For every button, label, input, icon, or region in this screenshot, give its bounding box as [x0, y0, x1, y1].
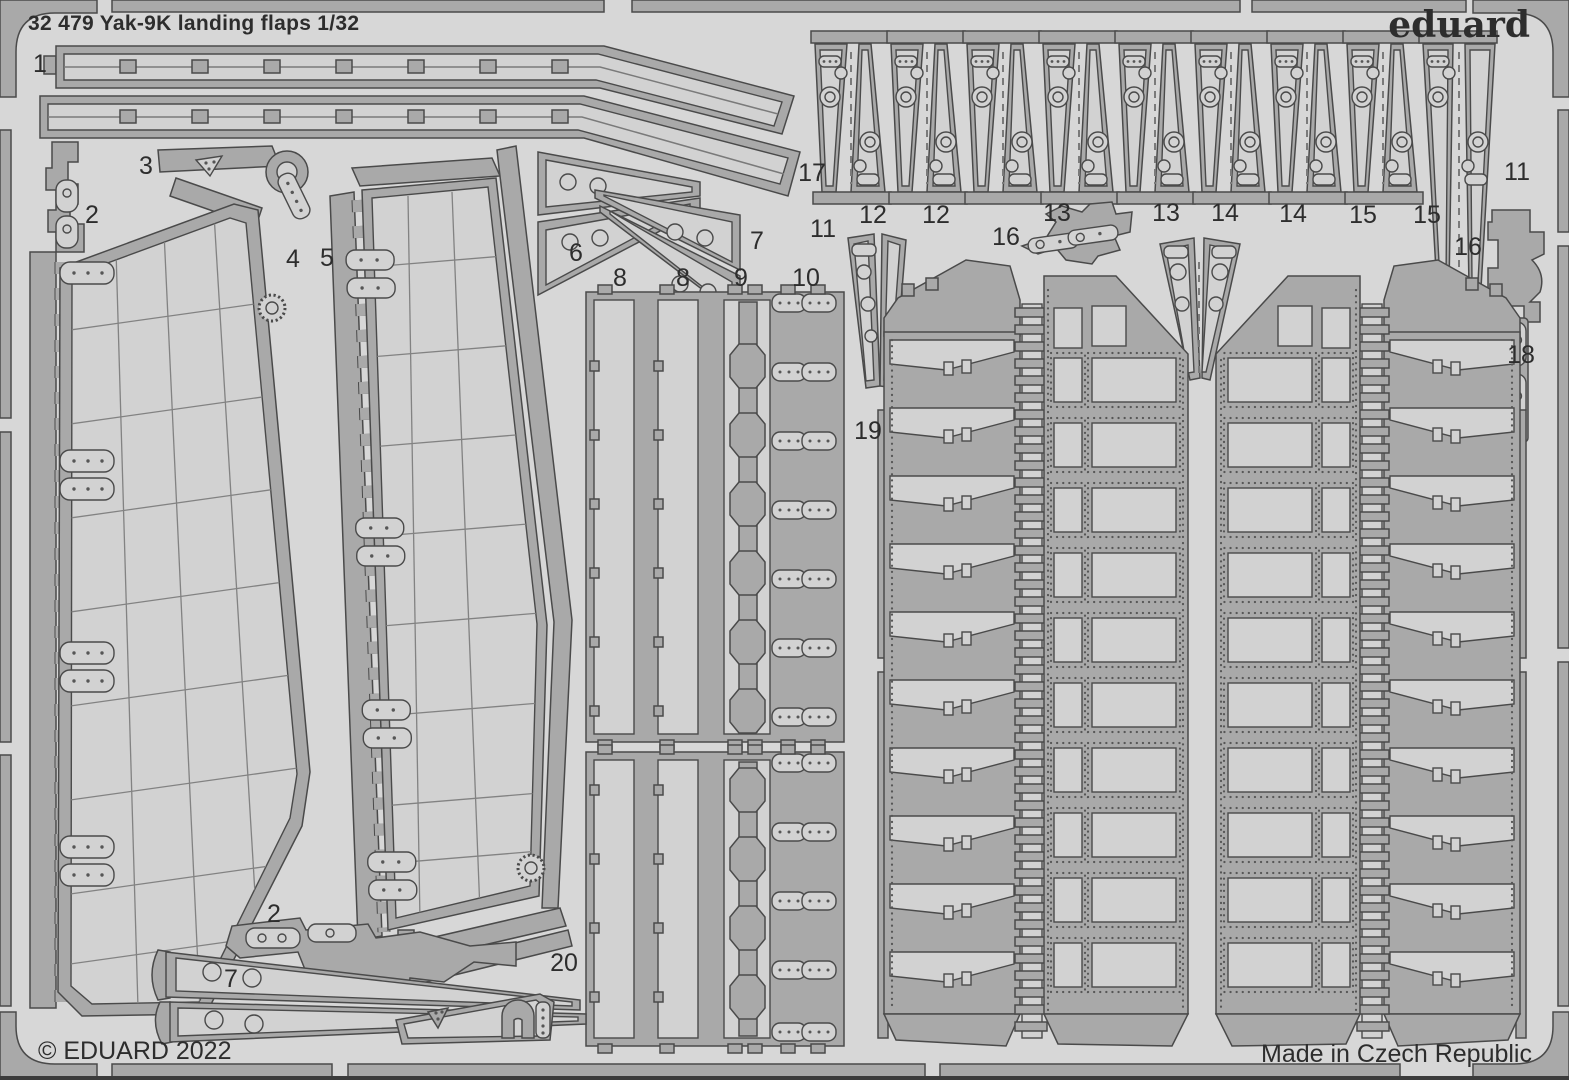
spine-tab [1015, 733, 1047, 742]
sprue-tab [781, 745, 795, 754]
strip-nub [590, 923, 599, 933]
rivet-dot [1139, 60, 1142, 63]
spine-tab [1357, 1005, 1389, 1014]
pe-fret-sheet: 1324567178891011121213131414151511161618… [0, 0, 1569, 1080]
spine-tab [1357, 325, 1389, 334]
spine-tab [1357, 342, 1389, 351]
rivet-dot [381, 860, 384, 863]
sheet-bottom-edge [0, 1076, 1569, 1080]
panel-window [1322, 748, 1350, 792]
rivet-dot [779, 831, 782, 834]
hex-bump [730, 620, 765, 664]
rib-lug [1313, 174, 1335, 185]
part-number-label: 9 [734, 264, 748, 292]
rib-hole [1006, 160, 1018, 172]
spine-tab [1357, 359, 1389, 368]
rib-hole [1082, 160, 1094, 172]
spine-tab [1015, 529, 1047, 538]
strip-nub [654, 430, 663, 440]
spine-tab [1015, 631, 1047, 640]
rivet-dot [779, 969, 782, 972]
strip-nub [590, 637, 599, 647]
spine-tab [1015, 750, 1047, 759]
gusset-tooth [962, 496, 971, 509]
rivet-dot [809, 302, 812, 305]
rivet-dot [797, 647, 800, 650]
rivet-dot [72, 487, 75, 490]
rib-hole [835, 67, 847, 79]
gusset-tooth [962, 768, 971, 781]
gusset-tooth [944, 838, 953, 851]
rivet-dot [797, 716, 800, 719]
rib-hole [1063, 67, 1075, 79]
rivet-dot [827, 1031, 830, 1034]
rivet-dot [779, 371, 782, 374]
gusset-tooth [962, 360, 971, 373]
frame-bottom-strip [112, 1064, 332, 1077]
rivet-dot [100, 459, 103, 462]
gusset-tooth [944, 362, 953, 375]
spine-tab [1015, 342, 1047, 351]
rivet-dot [393, 736, 396, 739]
rib-ring [1316, 132, 1336, 152]
part-8-strip [594, 760, 634, 1038]
rivet-dot [788, 371, 791, 374]
gusset-tooth [1433, 836, 1442, 849]
spine-tab [1357, 308, 1389, 317]
hinge-tab [552, 60, 568, 73]
rib-ring [1276, 87, 1296, 107]
spine-tab [1015, 988, 1047, 997]
hex-bump [730, 482, 765, 526]
top-tab [1466, 278, 1478, 290]
rib-lug [933, 174, 955, 185]
rib-hole [854, 160, 866, 172]
rivet-dot [809, 969, 812, 972]
rivet-dot [827, 647, 830, 650]
panel-window [1054, 423, 1082, 467]
rivet-dot [797, 578, 800, 581]
rib-ring [1240, 132, 1260, 152]
rivet-dot [72, 845, 75, 848]
spine-tab [1357, 852, 1389, 861]
panel-window [1228, 878, 1312, 922]
rivet-dot [1291, 60, 1294, 63]
rib-hole [930, 160, 942, 172]
sprue-tab [728, 745, 742, 754]
gusset-tooth [1451, 362, 1460, 375]
spine-tab [1357, 444, 1389, 453]
rivet-dot [788, 1031, 791, 1034]
rivet-dot [829, 60, 832, 63]
frame-left-strip [0, 130, 11, 418]
strip-nub [654, 568, 663, 578]
rivet-dot [72, 679, 75, 682]
spine-tab [1015, 699, 1047, 708]
rivet-dot [376, 708, 379, 711]
rib-ring [1200, 87, 1220, 107]
spine-tab [1357, 767, 1389, 776]
gusset-tooth [1433, 768, 1442, 781]
rivet-dot [818, 371, 821, 374]
gusset-tooth [1433, 632, 1442, 645]
part-8-strip [658, 300, 698, 734]
part-number-label: 18 [1507, 341, 1535, 369]
rivet-dot [72, 651, 75, 654]
spine-tab [1015, 376, 1047, 385]
rivet-dot [100, 679, 103, 682]
rivet-dot [827, 440, 830, 443]
part-number-label: 11 [810, 215, 836, 243]
rivet-dot [818, 969, 821, 972]
hinge-tab [120, 60, 136, 73]
rivet-dot [1443, 60, 1446, 63]
gusset-tooth [944, 430, 953, 443]
rail-lug [368, 852, 416, 872]
rib-lug [1465, 174, 1487, 185]
spine-tab [1015, 1005, 1047, 1014]
panel-window [1092, 553, 1176, 597]
panel-window [1092, 748, 1176, 792]
hinge-tab [192, 110, 208, 123]
part-number-label: 6 [569, 239, 583, 267]
rivet-dot [72, 459, 75, 462]
panel-window [1322, 813, 1350, 857]
panel-window [1228, 813, 1312, 857]
hex-bump [730, 689, 765, 733]
sprue-tab [660, 745, 674, 754]
flap-assembly-right [1216, 260, 1526, 1046]
gusset-tooth [944, 770, 953, 783]
strip-nub [590, 785, 599, 795]
strip-nub [654, 706, 663, 716]
gusset-tooth [962, 700, 971, 713]
sprue-rail [30, 252, 56, 1008]
rivet-dot [823, 60, 826, 63]
rivet-dot [788, 716, 791, 719]
rivet-dot [797, 900, 800, 903]
part-number-label: 20 [550, 949, 578, 977]
spine-tab [1357, 665, 1389, 674]
lug [56, 216, 78, 248]
rivet-dot [392, 708, 395, 711]
spine-tab [1357, 920, 1389, 929]
spine-tab [1357, 427, 1389, 436]
rivet-dot [809, 509, 812, 512]
rivet-dot [1285, 60, 1288, 63]
rivet-dot [818, 762, 821, 765]
rivet-dot [905, 60, 908, 63]
part-number-label: 15 [1413, 201, 1441, 229]
strip-nub [590, 499, 599, 509]
hinge-tab [336, 60, 352, 73]
sprue-tab [811, 745, 825, 754]
rivet-dot [809, 900, 812, 903]
panel-window [1228, 358, 1312, 402]
rivet-dot [827, 509, 830, 512]
rivet-dot [827, 371, 830, 374]
panel-window [1092, 943, 1176, 987]
rivet-dot [1437, 60, 1440, 63]
rail-lug [363, 728, 411, 748]
panel-window [1228, 423, 1312, 467]
hex-bump [730, 344, 765, 388]
panel-window [1322, 553, 1350, 597]
frame-right-strip [1558, 246, 1569, 648]
rib-hole [1139, 67, 1151, 79]
rivet-dot [1431, 60, 1434, 63]
rivet-dot [397, 860, 400, 863]
rivet-dot [797, 440, 800, 443]
rivet-dot [809, 647, 812, 650]
part-8-strip [594, 300, 634, 734]
spine-tab [1015, 308, 1047, 317]
rail-lug [357, 546, 405, 566]
spine-tab [1015, 954, 1047, 963]
rivet-dot [1355, 60, 1358, 63]
rivet-dot [86, 679, 89, 682]
part-number-label: 7 [224, 965, 238, 993]
gusset-tooth [1433, 564, 1442, 577]
spine-tab [1015, 580, 1047, 589]
rivet-dot [376, 286, 379, 289]
hinge-tab [480, 110, 496, 123]
rib-hole [1443, 67, 1455, 79]
rivet-dot [827, 716, 830, 719]
part-number-label: 12 [922, 201, 950, 229]
rivet-dot [987, 60, 990, 63]
rivet-dot [86, 651, 89, 654]
rivet-dot [818, 578, 821, 581]
spine-tab [1357, 580, 1389, 589]
sprue-tab [598, 285, 612, 294]
gusset-tooth [1451, 634, 1460, 647]
panel-window [1054, 748, 1082, 792]
gusset-tooth [962, 836, 971, 849]
strip-nub [654, 361, 663, 371]
frame-right-strip [1558, 662, 1569, 1006]
rivet-dot [818, 1031, 821, 1034]
top-tab [902, 284, 914, 296]
panel-window [1054, 488, 1082, 532]
part-number-label: 8 [676, 264, 690, 292]
brand-logo: eduard [1388, 4, 1530, 46]
rib-hole [911, 67, 923, 79]
hex-bump [730, 768, 765, 812]
rib-top-rail [1267, 31, 1345, 43]
spine-tab [1357, 716, 1389, 725]
rib-lug [1009, 174, 1031, 185]
rivet-dot [788, 509, 791, 512]
strip-nub [654, 499, 663, 509]
spine-tab [1357, 988, 1389, 997]
gusset-tooth [944, 498, 953, 511]
rib-ring [936, 132, 956, 152]
rivet-dot [1367, 60, 1370, 63]
gusset-tooth [1451, 770, 1460, 783]
rivet-dot [818, 509, 821, 512]
spine-tab [1015, 393, 1047, 402]
rib-ring [1012, 132, 1032, 152]
rivet-dot [779, 647, 782, 650]
part-number-label: 5 [320, 244, 334, 272]
gusset-tooth [1433, 360, 1442, 373]
rivet-dot [100, 873, 103, 876]
strip-nub [654, 785, 663, 795]
spine-tab [1015, 682, 1047, 691]
spine-tab [1015, 597, 1047, 606]
strip-nub [590, 706, 599, 716]
panel-window [1228, 943, 1312, 987]
rivet-dot [385, 526, 388, 529]
gusset-tooth [1451, 702, 1460, 715]
frame-left-strip [0, 432, 11, 742]
spine-tab [1357, 461, 1389, 470]
part-number-label: 16 [992, 223, 1020, 251]
part-number-label: 16 [1454, 233, 1482, 261]
rail-lug [362, 700, 410, 720]
rivet-dot [100, 651, 103, 654]
gusset-tooth [944, 702, 953, 715]
sheet-title: 32 479 Yak-9K landing flaps 1/32 [28, 12, 359, 35]
spine-tab [1015, 835, 1047, 844]
rib-hole [1291, 67, 1303, 79]
part-number-label: 3 [139, 152, 153, 180]
gusset-tooth [1433, 496, 1442, 509]
rivet-dot [809, 578, 812, 581]
strip-nub [590, 854, 599, 864]
panel-window [1228, 748, 1312, 792]
rivet-dot [86, 271, 89, 274]
rivet-dot [827, 900, 830, 903]
spine-tab [1357, 954, 1389, 963]
spine-tab [1357, 563, 1389, 572]
spine-tab [1015, 512, 1047, 521]
part-number-label: 13 [1043, 199, 1071, 227]
spine-tab [1015, 920, 1047, 929]
part-number-label: 4 [286, 245, 300, 273]
spine-tab [1357, 699, 1389, 708]
gusset-tooth [1433, 904, 1442, 917]
part-number-label: 17 [798, 159, 826, 187]
panel-window [1278, 306, 1312, 346]
rivet-dot [386, 554, 389, 557]
gusset-tooth [962, 904, 971, 917]
spine-tab [1015, 359, 1047, 368]
part-number-label: 15 [1349, 201, 1377, 229]
rivet-dot [1361, 60, 1364, 63]
rivet-dot [797, 509, 800, 512]
spine-tab [1357, 835, 1389, 844]
spine-tab [1357, 1022, 1389, 1031]
part-number-label: 11 [1504, 158, 1530, 186]
part-number-label: 19 [854, 417, 882, 445]
spine-tab [1015, 546, 1047, 555]
made-in: Made in Czech Republic [1261, 1040, 1532, 1068]
top-tab [1490, 284, 1502, 296]
rivet-dot [377, 736, 380, 739]
spine-tab [1357, 784, 1389, 793]
spine-tab [1357, 495, 1389, 504]
frame-top-strip [632, 0, 1240, 12]
strip-nub [654, 923, 663, 933]
spine-tab [1015, 444, 1047, 453]
rivet-dot [797, 1031, 800, 1034]
rivet-dot [1209, 60, 1212, 63]
part-number-label: 1 [33, 50, 47, 78]
rivet-dot [975, 60, 978, 63]
rivet-dot [981, 60, 984, 63]
rib-top-rail [887, 31, 965, 43]
rivet-dot [1063, 60, 1066, 63]
rivet-dot [797, 831, 800, 834]
rib-hole [1367, 67, 1379, 79]
spine-tab [1357, 478, 1389, 487]
sprue-tab [598, 1044, 612, 1053]
part-number-label: 7 [750, 227, 764, 255]
spine-tab [1015, 852, 1047, 861]
frame-left-strip [0, 755, 11, 1006]
panel-window [1322, 943, 1350, 987]
hex-bump [730, 975, 765, 1019]
part-number-label: 12 [859, 201, 887, 229]
rivet-dot [1203, 60, 1206, 63]
gear-hole [518, 855, 544, 881]
sprue-tab [781, 1044, 795, 1053]
rivet-dot [809, 831, 812, 834]
frame-bottom-strip [348, 1064, 925, 1077]
rivet-dot [797, 302, 800, 305]
rivet-dot [818, 831, 821, 834]
gusset-tooth [1451, 906, 1460, 919]
hinge-tab [264, 110, 280, 123]
rail-lug [347, 278, 395, 298]
spine-tab [1357, 512, 1389, 521]
spine-tab [1357, 597, 1389, 606]
top-tab [926, 278, 938, 290]
rib-ring [860, 132, 880, 152]
rivet-dot [100, 271, 103, 274]
spine-tab [1357, 937, 1389, 946]
rivet-dot [100, 487, 103, 490]
rib-ring [1468, 132, 1488, 152]
hinge-tab [120, 110, 136, 123]
rivet-dot [809, 1031, 812, 1034]
gusset-tooth [944, 974, 953, 987]
rib-ring [1164, 132, 1184, 152]
panel-window [1322, 488, 1350, 532]
hinge-tab [192, 60, 208, 73]
sprue-tab [748, 285, 762, 294]
gusset-tooth [962, 972, 971, 985]
panel-window [1092, 306, 1126, 346]
rivet-dot [1127, 60, 1130, 63]
rivet-dot [1057, 60, 1060, 63]
rivet-dot [369, 526, 372, 529]
fret-drawing: 1324567178891011121213131414151511161618… [0, 0, 1569, 1080]
rivet-dot [72, 873, 75, 876]
hinge-tab [264, 60, 280, 73]
rivet-dot [818, 716, 821, 719]
part-number-label: 14 [1211, 199, 1239, 227]
rib-hole [1234, 160, 1246, 172]
rivet-dot [788, 647, 791, 650]
rib-hole [1158, 160, 1170, 172]
spine-tab [1357, 529, 1389, 538]
rivet-dot [779, 762, 782, 765]
gusset-tooth [944, 634, 953, 647]
rivet-dot [382, 888, 385, 891]
